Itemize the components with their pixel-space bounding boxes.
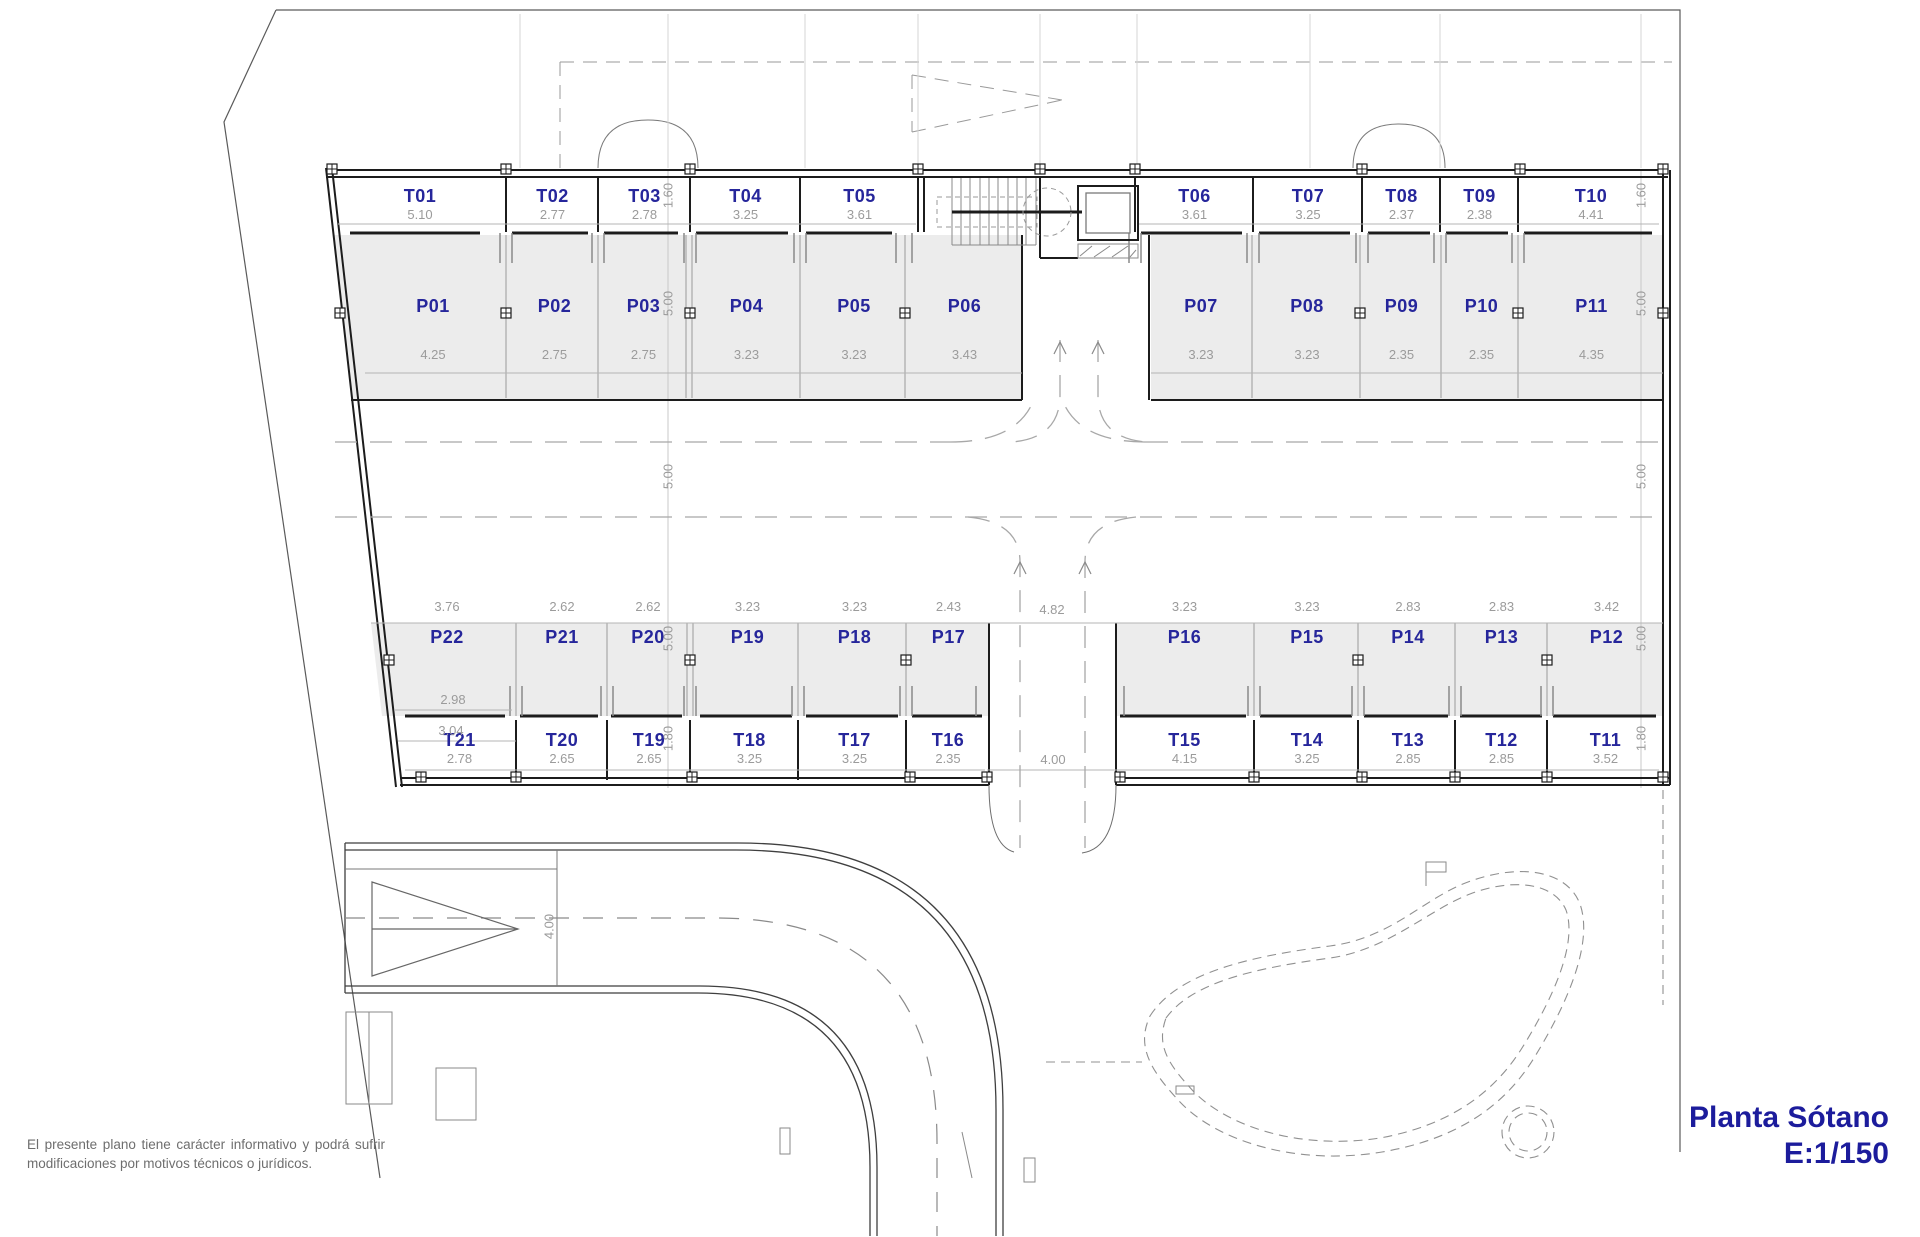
storage-label: T06 [1178, 186, 1211, 207]
parking-label: P04 [730, 296, 764, 317]
parking-label: P01 [416, 296, 450, 317]
parking-label: P11 [1575, 296, 1608, 317]
dim-parking-depth-bottom-left: 5.00 [661, 617, 676, 661]
parking-size: 3.42 [1594, 599, 1619, 614]
storage-label: T10 [1575, 186, 1608, 207]
parking-size: 3.76 [434, 599, 459, 614]
parking-label: P14 [1391, 627, 1425, 648]
parking-space-P05: P053.23 [804, 296, 904, 362]
dim-storage-depth-top-right: 1.60 [1634, 174, 1649, 218]
grid-projection-lines [520, 14, 1641, 168]
parking-size: 3.23 [842, 599, 867, 614]
stairs [937, 178, 1082, 245]
parking-size: 3.23 [734, 347, 759, 362]
storage-label: T02 [536, 186, 569, 207]
parking-space-P10: P102.35 [1446, 296, 1517, 362]
dim-parking-depth-top-left: 5.00 [661, 282, 676, 326]
parking-size: 3.23 [1188, 347, 1213, 362]
drawing-title-block: Planta Sótano E:1/150 [1689, 1100, 1889, 1172]
garden [1046, 790, 1663, 1158]
parking-size: 4.35 [1579, 347, 1604, 362]
dim-parking-depth-bottom-right: 5.00 [1634, 617, 1649, 661]
parking-label: P15 [1290, 627, 1324, 648]
bench-marker [1176, 1086, 1194, 1094]
storage-label: T05 [843, 186, 876, 207]
parking-label: P03 [627, 296, 661, 317]
storage-room-T04: T043.25 [692, 186, 799, 222]
storage-label: T14 [1291, 730, 1324, 751]
parking-space-P01: P014.25 [360, 296, 506, 362]
parking-size: 2.62 [635, 599, 660, 614]
storage-label: T18 [733, 730, 766, 751]
parking-label: P21 [545, 627, 579, 648]
parking-label: P08 [1290, 296, 1324, 317]
storage-size: 3.61 [847, 207, 872, 222]
storage-label: T07 [1292, 186, 1325, 207]
parking-space-P08: P083.23 [1255, 296, 1359, 362]
storage-room-T19: T192.65 [609, 730, 689, 766]
storage-size: 2.65 [636, 751, 661, 766]
storage-room-T15: T154.15 [1116, 730, 1253, 766]
parking-size: 2.35 [1469, 347, 1494, 362]
parking-label: P17 [932, 627, 966, 648]
parking-label: P06 [948, 296, 982, 317]
dim-aisle-width-right: 5.00 [1634, 455, 1649, 499]
parking-label: P07 [1184, 296, 1218, 317]
storage-size: 3.25 [1294, 751, 1319, 766]
storage-room-T12: T122.85 [1457, 730, 1546, 766]
disclaimer-note: El presente plano tiene carácter informa… [27, 1136, 385, 1174]
storage-size: 2.37 [1389, 207, 1414, 222]
storage-label: T17 [838, 730, 871, 751]
storage-size: 5.10 [407, 207, 432, 222]
storage-size: 2.85 [1395, 751, 1420, 766]
storage-room-T20: T202.65 [518, 730, 606, 766]
parking-size: 3.23 [1294, 599, 1319, 614]
storage-label: T08 [1385, 186, 1418, 207]
parking-space-P19: 3.23P19 [696, 599, 799, 648]
storage-room-T06: T063.61 [1137, 186, 1252, 222]
parking-space-P02: P022.75 [510, 296, 599, 362]
parking-space-P21: 2.62P21 [518, 599, 606, 648]
dim-parking-depth-top-right: 5.00 [1634, 282, 1649, 326]
storage-size: 2.35 [935, 751, 960, 766]
storage-size: 3.25 [842, 751, 867, 766]
road [345, 785, 1116, 1236]
parking-label: P18 [838, 627, 872, 648]
storage-room-T01: T015.10 [335, 186, 505, 222]
storage-label: T16 [932, 730, 965, 751]
parking-size: 3.23 [735, 599, 760, 614]
parking-label: P12 [1590, 627, 1624, 648]
storage-size: 2.78 [447, 751, 472, 766]
storage-size: 3.25 [1295, 207, 1320, 222]
storage-room-T09: T092.38 [1442, 186, 1517, 222]
parking-size: 3.23 [841, 347, 866, 362]
parking-space-P06: P063.43 [908, 296, 1021, 362]
parking-size: 2.35 [1389, 347, 1414, 362]
parking-label: P09 [1385, 296, 1419, 317]
parking-size: 4.25 [420, 347, 445, 362]
parking-space-P15: 3.23P15 [1256, 599, 1358, 648]
dim-storage-depth-bottom-left: 1.80 [661, 717, 676, 761]
flag-marker [1426, 862, 1446, 886]
storage-room-T13: T132.85 [1362, 730, 1454, 766]
storage-size: 2.77 [540, 207, 565, 222]
parking-size: 2.75 [631, 347, 656, 362]
dim-p22-back: 3.04 [396, 723, 506, 738]
parking-size: 2.43 [936, 599, 961, 614]
storage-room-T08: T082.37 [1364, 186, 1439, 222]
drawing-title: Planta Sótano [1689, 1100, 1889, 1136]
parking-label: P16 [1168, 627, 1202, 648]
basement-floor-plan: T015.10 T022.77 T032.78 T043.25 T053.61 … [0, 0, 1920, 1237]
parking-label: P13 [1485, 627, 1519, 648]
driveway-markings [335, 340, 1663, 848]
parking-label: P22 [430, 627, 464, 648]
parking-label: P02 [538, 296, 572, 317]
parking-space-P14: 2.83P14 [1362, 599, 1454, 648]
storage-size: 3.25 [733, 207, 758, 222]
parking-space-P09: P092.35 [1363, 296, 1440, 362]
parking-space-P16: 3.23P16 [1116, 599, 1253, 648]
dim-center-ramp-width: 4.82 [1002, 602, 1102, 617]
storage-size: 2.78 [632, 207, 657, 222]
storage-size: 3.25 [737, 751, 762, 766]
parking-size: 2.83 [1489, 599, 1514, 614]
upper-floor-overlay [560, 62, 1672, 168]
parking-label: P10 [1465, 296, 1499, 317]
parking-size: 2.62 [549, 599, 574, 614]
storage-size: 3.61 [1182, 207, 1207, 222]
parking-space-P18: 3.23P18 [804, 599, 905, 648]
parking-label: P05 [837, 296, 871, 317]
drawing-scale: E:1/150 [1689, 1136, 1889, 1172]
storage-label: T15 [1168, 730, 1201, 751]
storage-size: 2.65 [549, 751, 574, 766]
parking-space-P22: 3.76P22 [380, 599, 514, 648]
door-swing-arcs [598, 120, 1445, 168]
parking-space-P04: P043.23 [694, 296, 799, 362]
storage-label: T09 [1463, 186, 1496, 207]
parking-size: 3.43 [952, 347, 977, 362]
parking-space-P07: P073.23 [1151, 296, 1251, 362]
storage-label: T01 [404, 186, 437, 207]
dim-storage-depth-top-left: 1.60 [661, 174, 676, 218]
storage-label: T03 [628, 186, 661, 207]
parking-size: 3.23 [1172, 599, 1197, 614]
storage-size: 3.52 [1593, 751, 1618, 766]
dim-south-exit-width: 4.00 [1009, 752, 1097, 767]
storage-label: T20 [546, 730, 579, 751]
storage-size: 4.41 [1578, 207, 1603, 222]
storage-size: 2.85 [1489, 751, 1514, 766]
storage-room-T16: T162.35 [908, 730, 988, 766]
storage-size: 4.15 [1172, 751, 1197, 766]
storage-size: 2.38 [1467, 207, 1492, 222]
storage-label: T11 [1590, 730, 1622, 751]
storage-label: T13 [1392, 730, 1425, 751]
storage-room-T17: T173.25 [804, 730, 905, 766]
parking-space-P17: 2.43P17 [908, 599, 989, 648]
storage-room-T02: T022.77 [508, 186, 597, 222]
storage-room-T05: T053.61 [802, 186, 917, 222]
parking-size: 3.23 [1294, 347, 1319, 362]
storage-room-T18: T183.25 [698, 730, 801, 766]
dim-p22-front: 2.98 [398, 692, 508, 707]
storage-label: T04 [729, 186, 762, 207]
parking-label: P19 [731, 627, 765, 648]
storage-room-T14: T143.25 [1256, 730, 1358, 766]
parking-size: 2.83 [1395, 599, 1420, 614]
dim-storage-depth-bottom-right: 1.80 [1634, 717, 1649, 761]
parking-space-P13: 2.83P13 [1457, 599, 1546, 648]
dim-aisle-width-left: 5.00 [661, 455, 676, 499]
misc-sketches [346, 862, 1446, 1182]
storage-label: T12 [1485, 730, 1518, 751]
storage-room-T03: T032.78 [600, 186, 689, 222]
storage-room-T07: T073.25 [1255, 186, 1361, 222]
ramp-arrow [372, 882, 518, 976]
dim-west-ramp-width: 4.00 [542, 905, 557, 949]
parking-size: 2.75 [542, 347, 567, 362]
road-centerline [345, 918, 937, 1236]
